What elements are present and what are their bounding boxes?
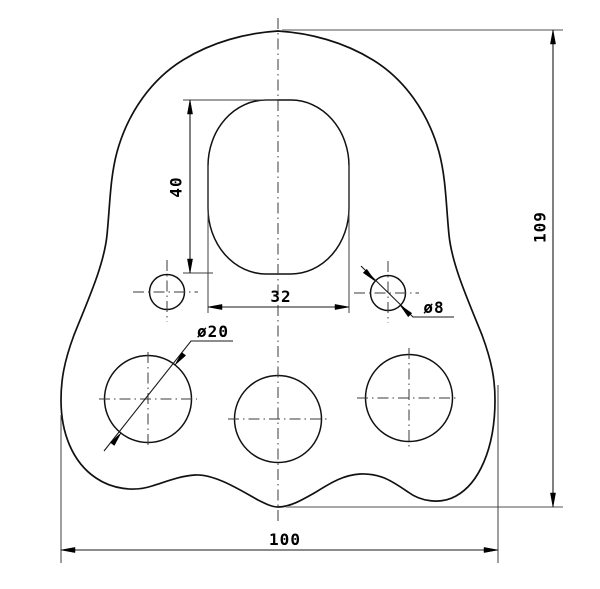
arrow-right-icon (484, 547, 498, 552)
technical-drawing-page: 40 32 109 100 (0, 0, 600, 589)
arrow-up-icon (187, 100, 192, 114)
arrow-up-icon (550, 30, 555, 44)
dim-text-overall-width: 100 (269, 530, 301, 549)
technical-drawing: 40 32 109 100 (0, 0, 600, 589)
dimension-slot-height: 40 (167, 100, 278, 273)
arrow-left-icon (61, 547, 75, 552)
centerlines (99, 18, 458, 522)
dim-text-small-hole-diameter: ø8 (423, 298, 444, 317)
arrow-down-icon (550, 493, 555, 507)
arrow-left-icon (208, 304, 222, 309)
arrow-right-icon (335, 304, 349, 309)
arrow-upper-left-icon (363, 269, 375, 281)
arrow-lower-right-icon (400, 305, 412, 317)
leader-large-hole-diameter: ø20 (104, 322, 233, 451)
dimension-overall-width: 100 (61, 385, 498, 563)
dim-text-slot-width: 32 (270, 287, 291, 306)
dim-text-overall-height: 109 (531, 211, 550, 243)
arrow-lower-left-icon (110, 433, 121, 446)
leader-small-hole-diameter: ø8 (361, 266, 454, 317)
dimension-overall-height: 109 (282, 30, 563, 507)
dim-text-large-hole-diameter: ø20 (197, 322, 229, 341)
dim-text-slot-height: 40 (167, 176, 186, 197)
arrow-down-icon (187, 259, 192, 273)
